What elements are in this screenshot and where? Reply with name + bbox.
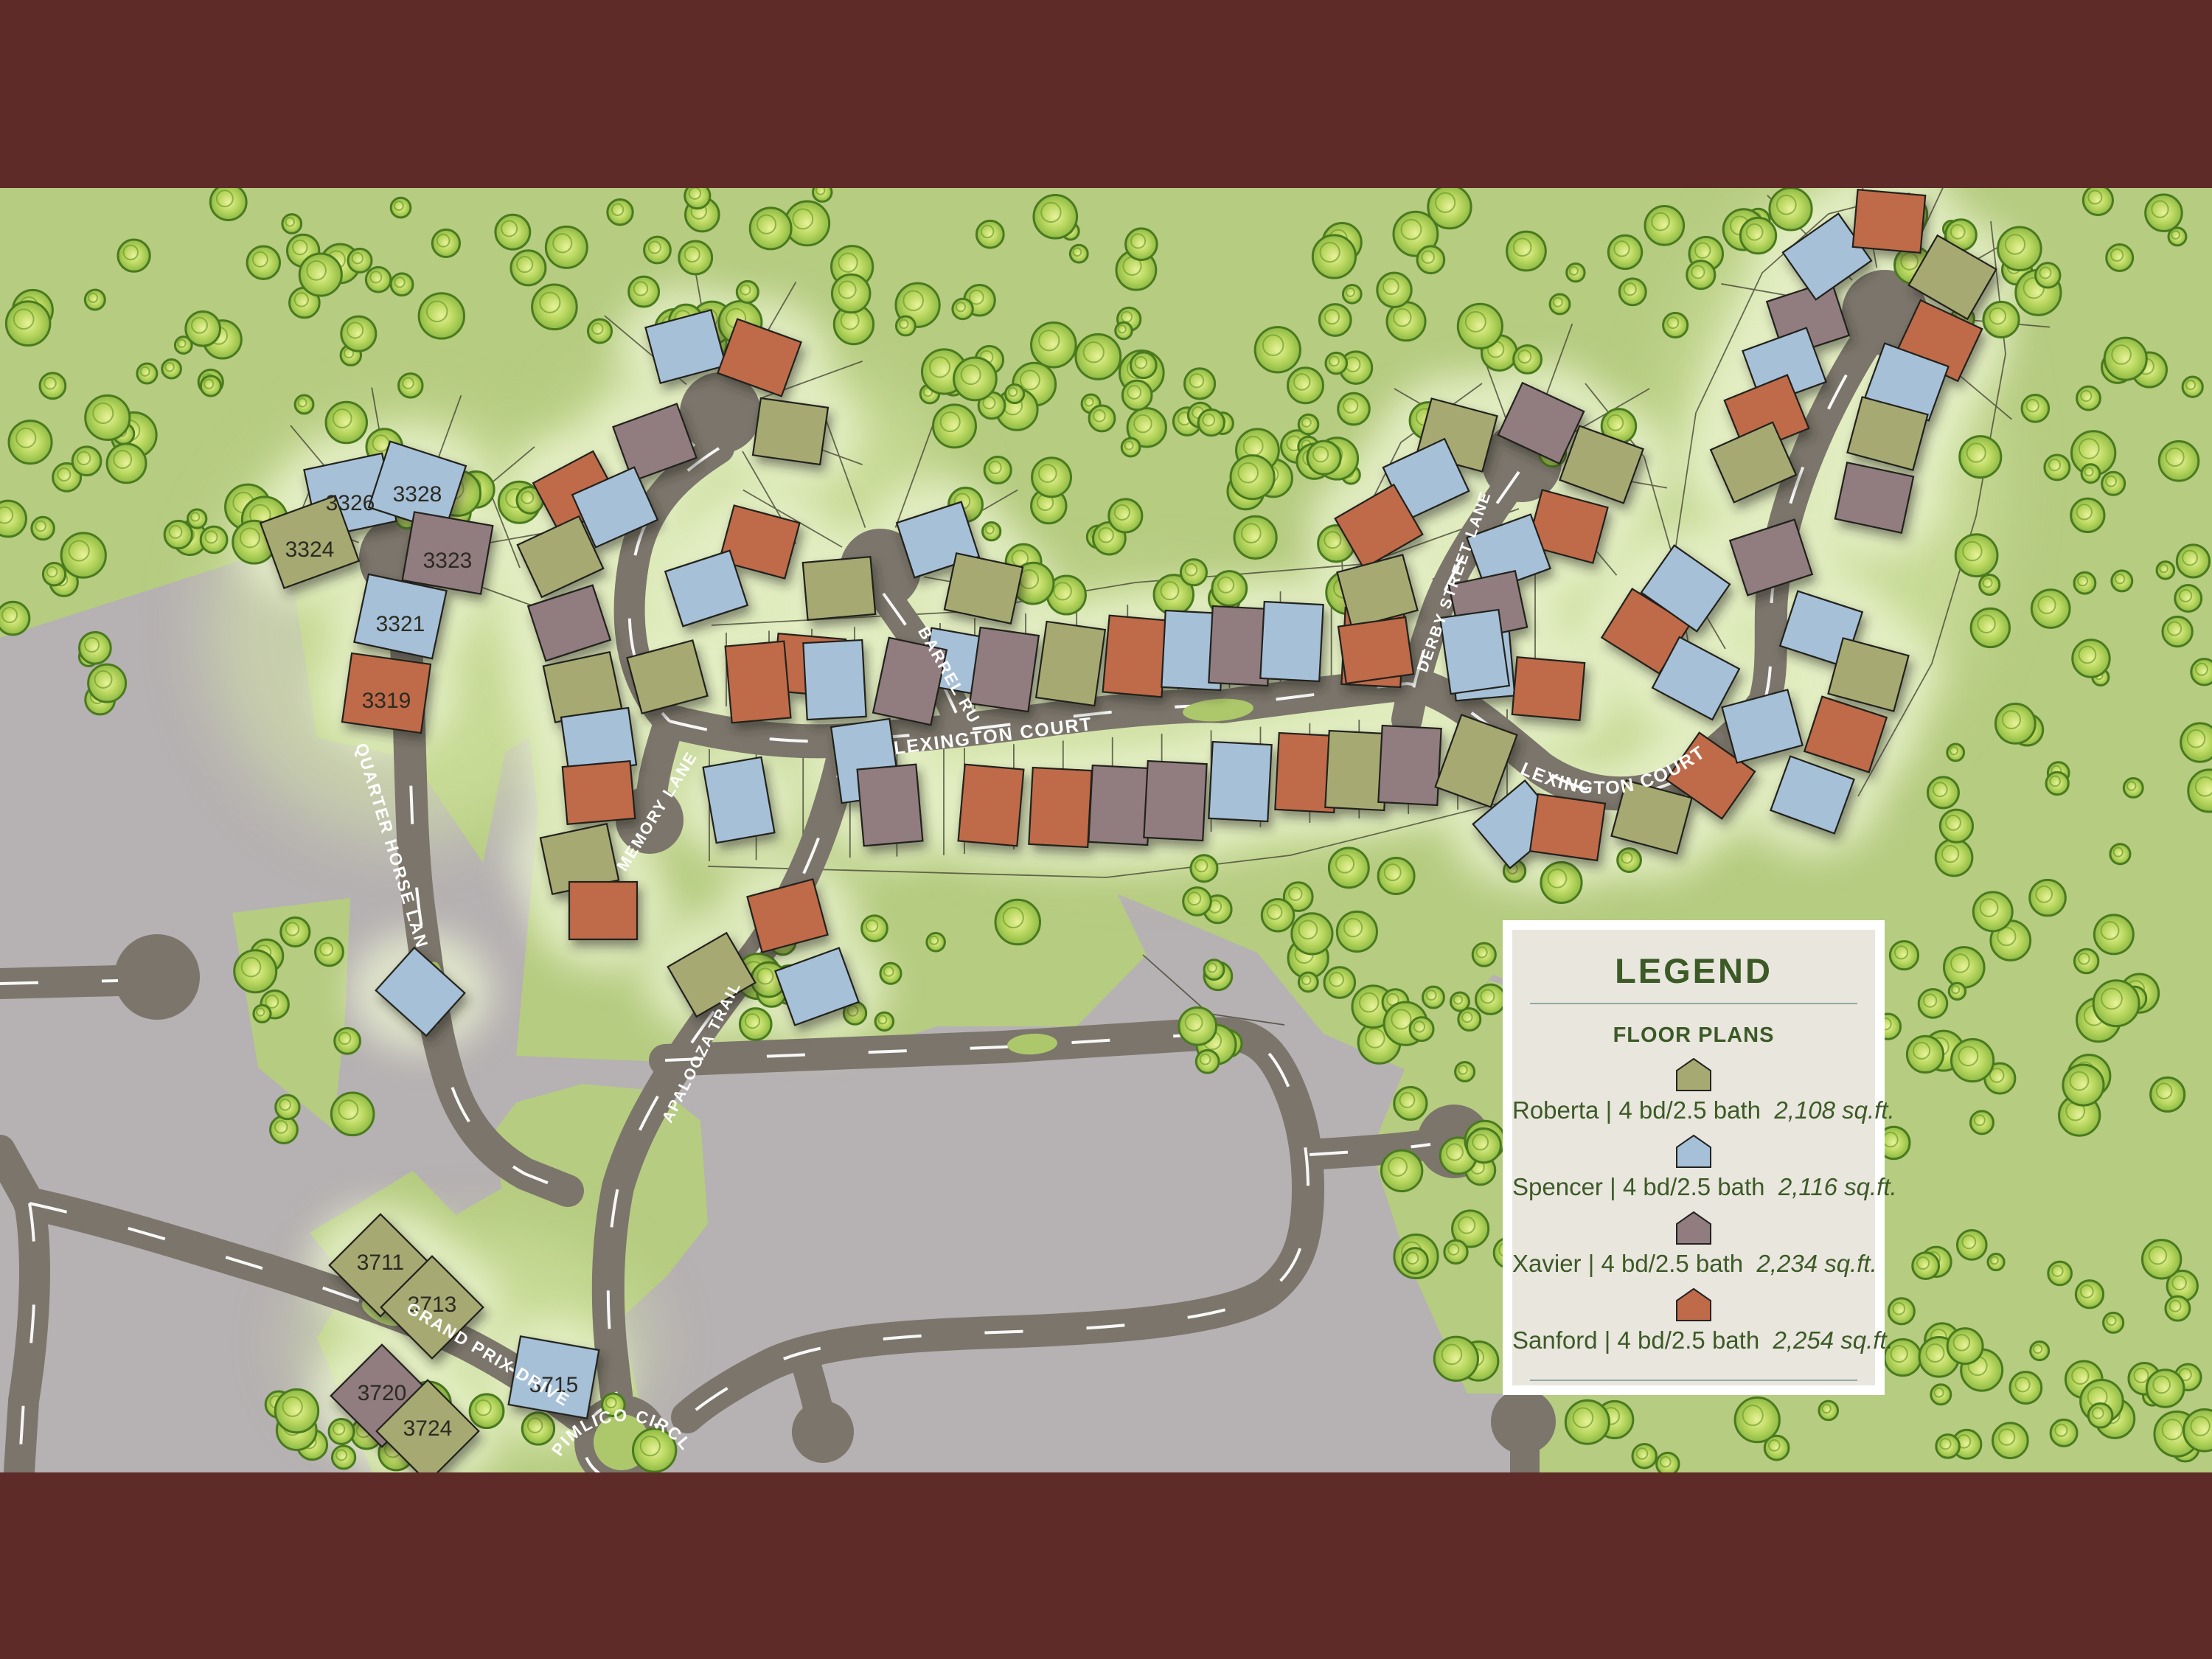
cul-de-sac-bulb bbox=[114, 934, 200, 1020]
tree-icon bbox=[1949, 983, 1965, 999]
tree-icon bbox=[2077, 386, 2101, 410]
tree-icon bbox=[1944, 947, 1984, 988]
house-F bbox=[1029, 768, 1091, 847]
tree-icon bbox=[329, 1419, 354, 1444]
tree-icon bbox=[2163, 616, 2192, 646]
tree-icon bbox=[862, 916, 888, 942]
lot-number: 3720 bbox=[358, 1381, 407, 1405]
tree-icon bbox=[2046, 772, 2068, 794]
legend-subtitle: FLOOR PLANS bbox=[1512, 1023, 1875, 1048]
tree-icon bbox=[2076, 1281, 2103, 1308]
tree-icon bbox=[495, 215, 530, 249]
tree-icon bbox=[1980, 575, 2000, 595]
tree-icon bbox=[1006, 385, 1024, 403]
tree-icon bbox=[1255, 327, 1300, 372]
tree-icon bbox=[72, 447, 101, 476]
legend-divider-bottom bbox=[1530, 1380, 1857, 1381]
tree-icon bbox=[1458, 304, 1502, 348]
tree-icon bbox=[1423, 987, 1444, 1008]
tree-icon bbox=[1032, 322, 1077, 367]
tree-icon bbox=[2088, 1403, 2112, 1427]
tree-icon bbox=[1326, 352, 1347, 374]
tree-icon bbox=[896, 316, 915, 335]
tree-icon bbox=[1121, 438, 1140, 456]
tree-icon bbox=[85, 290, 105, 310]
cul-de-sac-bulb bbox=[1491, 1389, 1556, 1454]
tree-icon bbox=[1394, 1087, 1427, 1119]
tree-icon bbox=[2177, 545, 2209, 577]
tree-icon bbox=[1444, 1240, 1467, 1263]
tree-icon bbox=[86, 395, 130, 439]
tree-icon bbox=[1130, 352, 1156, 378]
tree-icon bbox=[588, 319, 611, 343]
tree-icon bbox=[1089, 406, 1115, 431]
tree-icon bbox=[1298, 414, 1318, 434]
tree-icon bbox=[1475, 984, 1505, 1014]
tree-icon bbox=[137, 364, 157, 383]
tree-icon bbox=[0, 501, 26, 537]
tree-icon bbox=[1567, 264, 1585, 282]
tree-icon bbox=[1632, 1444, 1657, 1468]
house-X bbox=[1144, 761, 1206, 841]
tree-icon bbox=[1329, 848, 1368, 888]
tree-icon bbox=[1312, 235, 1355, 278]
tree-icon bbox=[275, 1389, 318, 1432]
tree-icon bbox=[953, 299, 973, 319]
legend-item-label: Xavier | 4 bd/2.5 bath 2,234 sq.ft. bbox=[1512, 1250, 1875, 1278]
tree-icon bbox=[2146, 1370, 2184, 1408]
tree-icon bbox=[1907, 1036, 1943, 1072]
tree-icon bbox=[186, 312, 220, 347]
tree-icon bbox=[1298, 973, 1318, 992]
floor-plan-house-icon bbox=[1674, 1210, 1713, 1245]
legend-item-xavier: Xavier | 4 bd/2.5 bath 2,234 sq.ft. bbox=[1512, 1210, 1875, 1278]
tree-icon bbox=[880, 963, 901, 984]
tree-icon bbox=[188, 509, 206, 528]
tree-icon bbox=[1109, 499, 1142, 532]
tree-icon bbox=[1116, 322, 1132, 338]
lot-number: 3326 bbox=[326, 491, 375, 515]
tree-icon bbox=[432, 229, 459, 257]
tree-icon bbox=[1645, 206, 1684, 246]
tree-icon bbox=[1936, 1435, 1960, 1458]
tree-icon bbox=[927, 933, 945, 951]
tree-icon bbox=[750, 208, 791, 249]
house-R bbox=[753, 398, 828, 465]
tree-icon bbox=[1472, 943, 1495, 966]
tree-icon bbox=[1993, 1423, 2028, 1458]
tree-icon bbox=[1770, 188, 1812, 230]
tree-icon bbox=[1184, 369, 1214, 399]
tree-icon bbox=[1960, 437, 2001, 478]
tree-icon bbox=[2191, 659, 2212, 685]
lot-number: 3711 bbox=[357, 1251, 405, 1275]
tree-icon bbox=[1608, 235, 1641, 268]
tree-icon bbox=[1913, 1253, 1939, 1279]
tree-icon bbox=[954, 358, 997, 400]
tree-icon bbox=[2063, 1065, 2104, 1105]
tree-icon bbox=[1663, 313, 1688, 337]
house-F bbox=[563, 761, 635, 824]
tree-icon bbox=[254, 1005, 271, 1022]
tree-icon bbox=[1970, 1111, 1993, 1134]
tree-icon bbox=[1381, 1150, 1422, 1191]
floor-plan-house-icon bbox=[1674, 1287, 1713, 1322]
cul-de-sac-bulb bbox=[792, 1401, 854, 1463]
tree-icon bbox=[1458, 1009, 1481, 1031]
tree-icon bbox=[1262, 900, 1293, 931]
house-R bbox=[1036, 622, 1105, 706]
legend-divider bbox=[1530, 1003, 1857, 1004]
tree-icon bbox=[1550, 294, 1570, 314]
tree-icon bbox=[1337, 911, 1377, 951]
house-F bbox=[726, 641, 791, 723]
tree-icon bbox=[2074, 572, 2096, 594]
tree-icon bbox=[1122, 380, 1152, 410]
tree-icon bbox=[1931, 1385, 1951, 1405]
tree-icon bbox=[2146, 195, 2182, 231]
tree-icon bbox=[1971, 608, 2009, 647]
tree-icon bbox=[276, 1095, 299, 1119]
house-F bbox=[1512, 657, 1585, 720]
tree-icon bbox=[1183, 888, 1211, 916]
tree-icon bbox=[2159, 442, 2199, 481]
tree-icon bbox=[1764, 1436, 1789, 1460]
tree-icon bbox=[629, 276, 659, 307]
lot-number: 3319 bbox=[362, 689, 411, 713]
tree-icon bbox=[2030, 880, 2066, 916]
tree-icon bbox=[2110, 844, 2130, 864]
house-S bbox=[1260, 602, 1323, 681]
house-S bbox=[803, 640, 866, 720]
tree-icon bbox=[1196, 1050, 1219, 1073]
tree-icon bbox=[1324, 967, 1355, 998]
tree-icon bbox=[2071, 498, 2104, 532]
lot-number: 3321 bbox=[376, 612, 425, 636]
house-F bbox=[569, 882, 637, 939]
tree-icon bbox=[2045, 455, 2070, 480]
lot-number: 3328 bbox=[393, 482, 442, 507]
tree-icon bbox=[2104, 338, 2146, 380]
tree-icon bbox=[1204, 960, 1224, 980]
tree-icon bbox=[1927, 777, 1958, 808]
tree-icon bbox=[1234, 516, 1276, 558]
tree-icon bbox=[1292, 914, 1332, 954]
tree-icon bbox=[2081, 465, 2100, 483]
tree-icon bbox=[2166, 1296, 2190, 1321]
legend-item-label: Sanford | 4 bd/2.5 bath 2,254 sq.ft. bbox=[1512, 1326, 1875, 1354]
tree-icon bbox=[1618, 849, 1641, 872]
tree-icon bbox=[366, 267, 391, 292]
tree-icon bbox=[234, 950, 276, 992]
house-X bbox=[858, 765, 923, 846]
tree-icon bbox=[1231, 456, 1274, 499]
tree-icon bbox=[6, 302, 50, 346]
tree-icon bbox=[737, 281, 758, 302]
tree-icon bbox=[1998, 227, 2042, 271]
tree-icon bbox=[335, 1028, 361, 1054]
tree-icon bbox=[1951, 1039, 1993, 1081]
tree-icon bbox=[1198, 409, 1224, 435]
tree-icon bbox=[2083, 185, 2112, 215]
tree-icon bbox=[1410, 1018, 1433, 1041]
tree-icon bbox=[2168, 228, 2186, 246]
tree-icon bbox=[281, 917, 310, 946]
tree-icon bbox=[2031, 590, 2070, 628]
tree-icon bbox=[2112, 571, 2132, 591]
tree-icon bbox=[2036, 263, 2060, 288]
tree-icon bbox=[1467, 1129, 1500, 1163]
tree-icon bbox=[1657, 1453, 1679, 1475]
tree-icon bbox=[398, 374, 422, 398]
house-R bbox=[803, 557, 875, 620]
tree-icon bbox=[1619, 279, 1646, 305]
tree-icon bbox=[832, 274, 869, 312]
tree-icon bbox=[511, 251, 546, 285]
tree-icon bbox=[2183, 377, 2202, 397]
legend-item-label: Spencer | 4 bd/2.5 bath 2,116 sq.ft. bbox=[1512, 1173, 1875, 1201]
tree-icon bbox=[2142, 1240, 2180, 1279]
tree-icon bbox=[247, 246, 279, 279]
house-S bbox=[703, 757, 775, 843]
tree-icon bbox=[532, 285, 577, 330]
house-X bbox=[1088, 765, 1151, 845]
tree-icon bbox=[522, 1413, 554, 1444]
tree-icon bbox=[32, 517, 54, 539]
floor-plan-house-icon bbox=[1674, 1133, 1713, 1169]
tree-icon bbox=[470, 1394, 504, 1428]
lot-number: 3324 bbox=[285, 538, 335, 562]
tree-icon bbox=[316, 938, 344, 966]
legend-panel: LEGEND FLOOR PLANS Roberta | 4 bd/2.5 ba… bbox=[1503, 920, 1885, 1395]
tree-icon bbox=[2175, 585, 2202, 612]
tree-icon bbox=[1947, 1329, 1983, 1364]
house-F bbox=[1103, 616, 1169, 698]
tree-icon bbox=[1307, 441, 1340, 474]
legend-item-spencer: Spencer | 4 bd/2.5 bath 2,116 sq.ft. bbox=[1512, 1133, 1875, 1201]
tree-icon bbox=[1343, 285, 1361, 303]
tree-icon bbox=[118, 240, 150, 271]
tree-icon bbox=[1338, 393, 1370, 425]
tree-icon bbox=[875, 1012, 894, 1031]
tree-icon bbox=[1995, 704, 2035, 744]
tree-icon bbox=[2181, 723, 2212, 762]
lot-number: 3724 bbox=[403, 1416, 453, 1441]
tree-icon bbox=[331, 1093, 374, 1135]
tree-icon bbox=[43, 563, 65, 585]
tree-icon bbox=[608, 200, 633, 225]
tree-icon bbox=[2073, 640, 2110, 677]
tree-icon bbox=[2048, 1262, 2072, 1285]
tree-icon bbox=[1212, 571, 1247, 606]
tree-icon bbox=[546, 226, 587, 268]
tree-icon bbox=[164, 521, 192, 548]
tree-icon bbox=[2107, 245, 2133, 271]
tree-icon bbox=[1935, 839, 1972, 876]
tree-icon bbox=[2031, 1342, 2049, 1360]
tree-icon bbox=[1034, 195, 1077, 238]
tree-icon bbox=[332, 1446, 355, 1469]
house-X bbox=[1378, 726, 1441, 805]
tree-icon bbox=[679, 241, 712, 274]
tree-icon bbox=[1417, 246, 1444, 274]
tree-icon bbox=[1455, 1062, 1475, 1081]
tree-icon bbox=[1888, 1298, 1914, 1324]
tree-icon bbox=[1973, 892, 2012, 931]
tree-icon bbox=[1507, 232, 1546, 271]
tree-icon bbox=[2093, 981, 2139, 1026]
tree-icon bbox=[61, 533, 105, 577]
tree-icon bbox=[271, 1116, 298, 1144]
tree-icon bbox=[1070, 245, 1088, 262]
floor-plan-house-icon bbox=[1674, 1057, 1713, 1092]
tree-icon bbox=[2074, 949, 2098, 973]
tree-icon bbox=[2157, 562, 2174, 580]
house-X bbox=[970, 627, 1039, 712]
tree-icon bbox=[1955, 535, 1997, 577]
tree-icon bbox=[1983, 302, 2019, 337]
tree-icon bbox=[0, 602, 29, 635]
tree-icon bbox=[1076, 334, 1121, 379]
tree-icon bbox=[984, 456, 1011, 483]
house-F bbox=[1338, 617, 1413, 684]
tree-icon bbox=[1126, 229, 1158, 260]
house-S bbox=[1208, 742, 1271, 821]
tree-icon bbox=[210, 184, 246, 220]
tree-icon bbox=[1288, 368, 1324, 403]
tree-icon bbox=[785, 201, 829, 246]
site-plan-map: 3326332833243323332133193711371337203724… bbox=[0, 0, 2212, 1659]
tree-icon bbox=[976, 220, 1004, 248]
tree-icon bbox=[1191, 855, 1217, 882]
tree-icon bbox=[1819, 1401, 1838, 1420]
tree-icon bbox=[2051, 1419, 2077, 1446]
tree-icon bbox=[1957, 1231, 1986, 1260]
tree-icon bbox=[995, 900, 1040, 944]
tree-icon bbox=[299, 254, 341, 296]
tree-icon bbox=[1032, 458, 1071, 497]
house-F bbox=[1853, 189, 1925, 253]
tree-icon bbox=[1940, 810, 1972, 842]
tree-icon bbox=[2124, 779, 2143, 798]
tree-icon bbox=[2010, 1372, 2042, 1404]
tree-icon bbox=[391, 274, 413, 296]
legend-item-roberta: Roberta | 4 bd/2.5 bath 2,108 sq.ft. bbox=[1512, 1057, 1875, 1124]
tree-icon bbox=[1740, 218, 1775, 253]
house-F bbox=[959, 765, 1024, 846]
tree-icon bbox=[1378, 858, 1414, 894]
tree-icon bbox=[1565, 1400, 1609, 1444]
tree-icon bbox=[740, 1009, 771, 1040]
tree-icon bbox=[201, 376, 220, 396]
tree-icon bbox=[1947, 744, 1964, 761]
tree-icon bbox=[1988, 1254, 2004, 1270]
tree-icon bbox=[1919, 990, 1947, 1018]
tree-icon bbox=[419, 293, 464, 338]
tree-icon bbox=[1541, 862, 1582, 902]
tree-icon bbox=[1434, 1337, 1478, 1380]
tree-icon bbox=[162, 359, 181, 378]
legend-item-label: Roberta | 4 bd/2.5 bath 2,108 sq.ft. bbox=[1512, 1096, 1875, 1124]
legend-title: LEGEND bbox=[1512, 950, 1875, 991]
tree-icon bbox=[2104, 1312, 2124, 1332]
tree-icon bbox=[107, 444, 146, 483]
tree-icon bbox=[348, 248, 372, 272]
tree-icon bbox=[282, 215, 302, 234]
top-band bbox=[0, 0, 2212, 188]
tree-icon bbox=[1514, 345, 1542, 373]
lot-number: 3323 bbox=[423, 549, 473, 573]
tree-icon bbox=[1179, 1007, 1217, 1045]
tree-icon bbox=[1377, 273, 1411, 307]
tree-icon bbox=[2151, 1077, 2185, 1111]
tree-icon bbox=[88, 664, 126, 702]
tree-icon bbox=[2094, 915, 2133, 954]
house-F bbox=[1530, 794, 1605, 860]
tree-icon bbox=[1180, 560, 1206, 585]
tree-icon bbox=[1890, 942, 1918, 970]
tree-icon bbox=[1319, 305, 1351, 336]
tree-icon bbox=[295, 395, 313, 414]
tree-icon bbox=[341, 316, 376, 351]
tree-icon bbox=[1402, 1248, 1428, 1274]
tree-icon bbox=[201, 526, 227, 553]
tree-icon bbox=[933, 405, 975, 448]
tree-icon bbox=[2102, 472, 2125, 495]
tree-icon bbox=[80, 632, 111, 664]
tree-icon bbox=[982, 523, 1000, 540]
house-S bbox=[1440, 610, 1509, 694]
tree-icon bbox=[326, 402, 366, 442]
bottom-band bbox=[0, 1472, 2212, 1659]
tree-icon bbox=[9, 421, 52, 464]
tree-icon bbox=[40, 373, 66, 399]
legend-item-sanford: Sanford | 4 bd/2.5 bath 2,254 sq.ft. bbox=[1512, 1287, 1875, 1354]
map-canvas: 3326332833243323332133193711371337203724… bbox=[0, 0, 2212, 1659]
tree-icon bbox=[644, 237, 671, 263]
tree-icon bbox=[2022, 395, 2049, 422]
legend-items: Roberta | 4 bd/2.5 bath 2,108 sq.ft. Spe… bbox=[1512, 1057, 1875, 1354]
tree-icon bbox=[391, 198, 411, 218]
tree-icon bbox=[1687, 261, 1715, 289]
